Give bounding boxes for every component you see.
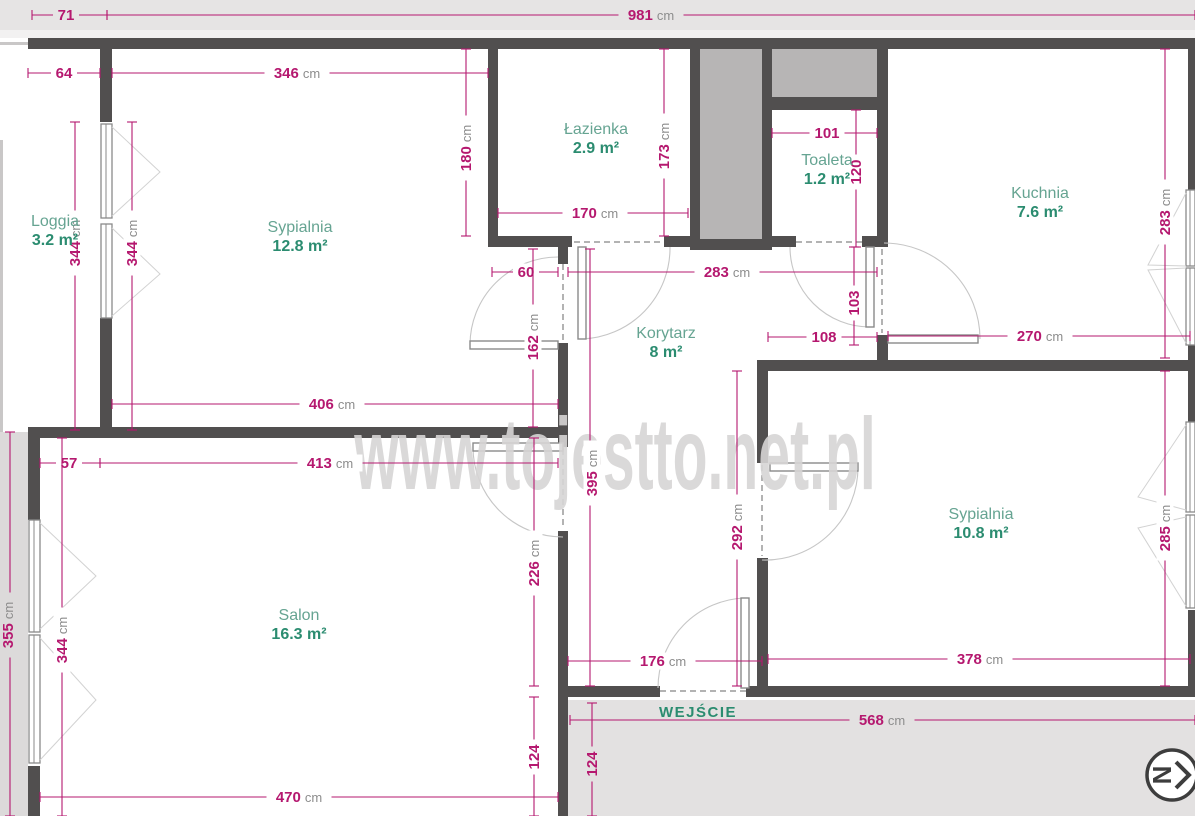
dimension-value: 162cm bbox=[525, 314, 542, 360]
dimension-value: 292cm bbox=[729, 504, 746, 550]
loggia-outer-edge bbox=[0, 140, 3, 432]
dimension-value: 173cm bbox=[656, 123, 673, 169]
toilet-top-shaft-fill bbox=[772, 49, 877, 97]
dimension-value: 180cm bbox=[458, 125, 475, 171]
room-area: 16.3 m² bbox=[271, 626, 326, 643]
room-name: Toaleta bbox=[801, 152, 853, 169]
watermark-text: www.tojestto.net.pl bbox=[354, 396, 876, 511]
dimension-value: 71 bbox=[58, 7, 75, 24]
dimension-value: 124 bbox=[584, 751, 601, 777]
watermark: www.tojestto.net.pl bbox=[354, 396, 876, 511]
wall-kitchen-south bbox=[757, 360, 1195, 371]
dimension-value: 355cm bbox=[0, 602, 17, 648]
wall-top-exterior bbox=[28, 38, 1195, 49]
room-area: 7.6 m² bbox=[1017, 204, 1063, 221]
dimension-value: 568cm bbox=[859, 712, 905, 729]
dimension-value: 344cm bbox=[124, 220, 141, 266]
dimension-value: 124 bbox=[526, 744, 543, 770]
dimension-value: 170cm bbox=[572, 205, 618, 222]
dimension-value: 103 bbox=[846, 290, 863, 315]
dimension-value: 406cm bbox=[309, 396, 355, 413]
dimension-value: 60 bbox=[518, 264, 535, 281]
wall-toilet-south-right bbox=[862, 236, 877, 247]
room-area: 8 m² bbox=[650, 344, 683, 361]
dimension-value: 64 bbox=[56, 65, 73, 82]
dimension-value: 283cm bbox=[1157, 189, 1174, 235]
wall-salon-west-lower bbox=[28, 766, 40, 816]
room-name: Kuchnia bbox=[1011, 185, 1069, 202]
room-area: 10.8 m² bbox=[953, 525, 1008, 542]
outside-top-light-strip bbox=[0, 30, 1195, 38]
wall-bathroom-south-left bbox=[488, 236, 572, 247]
room-name: Loggia bbox=[31, 213, 79, 230]
dimension-value: 101 bbox=[814, 125, 839, 142]
wall-corridor-west-c bbox=[558, 531, 568, 816]
dimension-value: 283cm bbox=[704, 264, 750, 281]
wall-bedroom2-east-lower bbox=[1188, 610, 1195, 697]
wall-corridor-west-a bbox=[558, 247, 568, 264]
room-name: Sypialnia bbox=[268, 219, 333, 236]
wall-bathroom-south-right bbox=[664, 236, 690, 247]
room-area: 12.8 m² bbox=[272, 238, 327, 255]
dimension-value: 344cm bbox=[54, 617, 71, 663]
dimension-value: 108 bbox=[811, 329, 836, 346]
room-name: Sypialnia bbox=[949, 506, 1014, 523]
dimension-value: 270cm bbox=[1017, 328, 1063, 345]
wall-kitchen-east-upper bbox=[1188, 38, 1195, 190]
wall-toilet-south-left bbox=[772, 236, 796, 247]
room-area: 2.9 m² bbox=[573, 140, 619, 157]
room-name: Salon bbox=[279, 607, 320, 624]
wall-shaft-east bbox=[762, 38, 772, 250]
wall-loggia-stub-bottom bbox=[100, 318, 112, 432]
entrance-label: WEJŚCIE bbox=[659, 703, 737, 721]
wall-salon-west-upper bbox=[28, 432, 40, 520]
wall-loggia-stub-top bbox=[100, 38, 112, 122]
room-area: 1.2 m² bbox=[804, 171, 850, 188]
dimension-value: 176cm bbox=[640, 653, 686, 670]
dimension-value: 470cm bbox=[276, 789, 322, 806]
floor-plan-svg: www.tojestto.net.pl 71981cm64346cm344cm3… bbox=[0, 0, 1195, 816]
wall-shaft-west bbox=[690, 38, 700, 250]
dimension-value: 57 bbox=[61, 455, 78, 472]
dimension-value: 413cm bbox=[307, 455, 353, 472]
dimension-value: 378cm bbox=[957, 651, 1003, 668]
room-name: Łazienka bbox=[564, 121, 628, 138]
dimension-value: 346cm bbox=[274, 65, 320, 82]
dimension-value: 226cm bbox=[526, 540, 543, 586]
floor-plan: www.tojestto.net.pl 71981cm64346cm344cm3… bbox=[0, 0, 1195, 816]
wall-entrance-right bbox=[746, 686, 1195, 697]
room-name: Korytarz bbox=[636, 325, 696, 342]
north-letter: N bbox=[1147, 766, 1177, 785]
room-area: 3.2 m² bbox=[32, 232, 78, 249]
wall-bedroom2-west-lower bbox=[757, 558, 768, 686]
dimension-value: 395cm bbox=[584, 450, 601, 496]
shaft-fill bbox=[700, 49, 762, 239]
wall-shaft-south bbox=[690, 239, 772, 250]
wall-entrance-left bbox=[568, 686, 660, 697]
wall-bathroom-west bbox=[488, 38, 498, 247]
dimension-value: 285cm bbox=[1157, 505, 1174, 551]
top-edge-line bbox=[0, 42, 28, 45]
wall-kitchen-west-upper bbox=[877, 38, 888, 247]
wall-bedroom2-east-upper bbox=[1188, 371, 1195, 422]
wall-toilet-north bbox=[772, 97, 877, 110]
north-arrow-icon: N bbox=[1147, 750, 1195, 800]
wall-kitchen-east-lower bbox=[1188, 345, 1195, 371]
dimension-value: 981cm bbox=[628, 7, 674, 24]
